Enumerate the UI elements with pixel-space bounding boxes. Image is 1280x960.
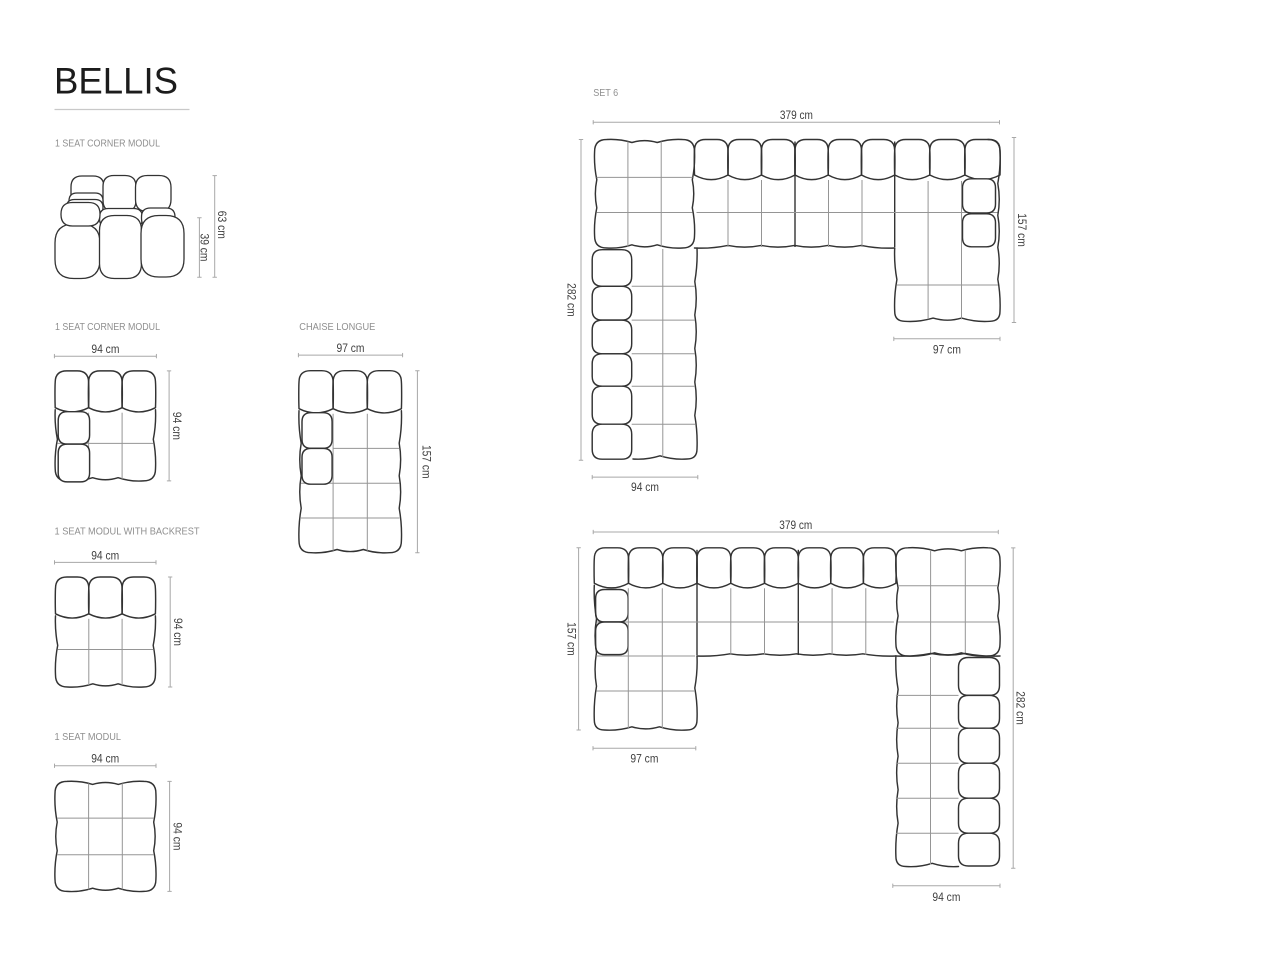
svg-text:282 cm: 282 cm [1014, 691, 1028, 725]
svg-text:SET 6: SET 6 [593, 87, 618, 99]
svg-text:94 cm: 94 cm [171, 822, 185, 850]
svg-text:1 SEAT MODUL: 1 SEAT MODUL [55, 731, 122, 743]
svg-text:379 cm: 379 cm [780, 108, 813, 122]
svg-text:1 SEAT MODUL WITH BACKREST: 1 SEAT MODUL WITH BACKREST [55, 526, 201, 538]
svg-text:97 cm: 97 cm [933, 343, 961, 357]
svg-text:282 cm: 282 cm [565, 283, 579, 317]
svg-text:CHAISE LONGUE: CHAISE LONGUE [299, 321, 375, 333]
svg-text:39 cm: 39 cm [198, 234, 212, 262]
svg-text:94 cm: 94 cm [91, 548, 119, 562]
svg-text:94 cm: 94 cm [631, 480, 659, 494]
svg-text:157 cm: 157 cm [1015, 213, 1029, 247]
svg-text:63 cm: 63 cm [215, 211, 229, 239]
svg-text:BELLIS: BELLIS [54, 61, 178, 102]
svg-text:97 cm: 97 cm [337, 341, 365, 355]
svg-text:97 cm: 97 cm [630, 752, 658, 766]
svg-text:94 cm: 94 cm [91, 752, 119, 766]
svg-text:94 cm: 94 cm [170, 412, 184, 440]
svg-text:379 cm: 379 cm [779, 518, 812, 532]
svg-text:94 cm: 94 cm [171, 618, 185, 646]
svg-text:1 SEAT CORNER MODUL: 1 SEAT CORNER MODUL [55, 321, 160, 333]
svg-text:157 cm: 157 cm [420, 445, 434, 479]
svg-text:157 cm: 157 cm [565, 622, 579, 656]
svg-text:94 cm: 94 cm [932, 890, 960, 904]
svg-text:1 SEAT CORNER MODUL: 1 SEAT CORNER MODUL [55, 138, 160, 150]
svg-text:94 cm: 94 cm [91, 342, 119, 356]
